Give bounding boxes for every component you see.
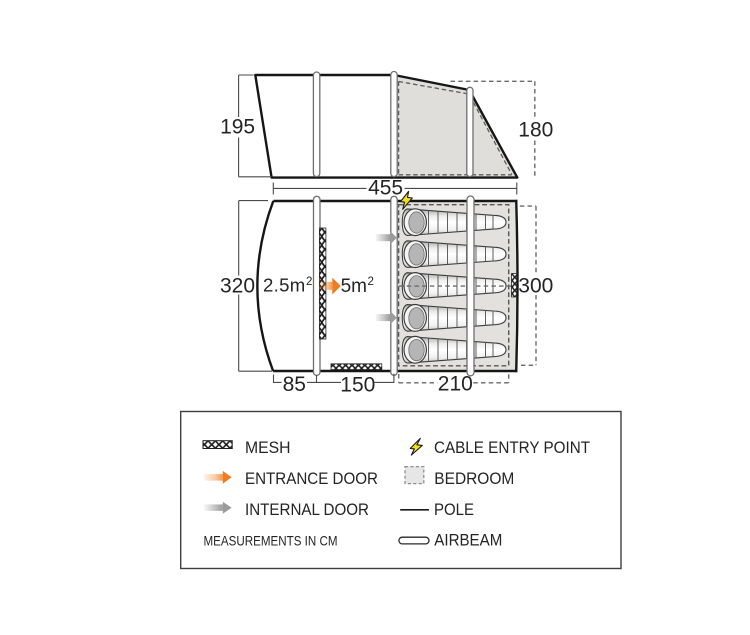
svg-text:455: 455 (368, 176, 403, 199)
svg-text:2.5m2: 2.5m2 (263, 275, 313, 296)
svg-text:AIRBEAM: AIRBEAM (434, 532, 502, 550)
svg-text:150: 150 (340, 373, 375, 396)
svg-text:195: 195 (220, 116, 255, 139)
svg-text:INTERNAL DOOR: INTERNAL DOOR (245, 501, 369, 519)
svg-text:180: 180 (518, 119, 553, 142)
svg-text:85: 85 (283, 373, 306, 396)
svg-text:POLE: POLE (434, 501, 474, 519)
svg-text:300: 300 (518, 275, 553, 298)
svg-text:5m2: 5m2 (341, 276, 374, 297)
svg-text:CABLE ENTRY POINT: CABLE ENTRY POINT (434, 439, 590, 457)
svg-text:210: 210 (438, 373, 473, 396)
svg-text:320: 320 (220, 275, 255, 298)
svg-text:ENTRANCE DOOR: ENTRANCE DOOR (245, 470, 378, 488)
svg-text:MEASUREMENTS IN CM: MEASUREMENTS IN CM (204, 533, 338, 549)
svg-text:BEDROOM: BEDROOM (434, 470, 514, 488)
svg-text:MESH: MESH (245, 439, 291, 457)
